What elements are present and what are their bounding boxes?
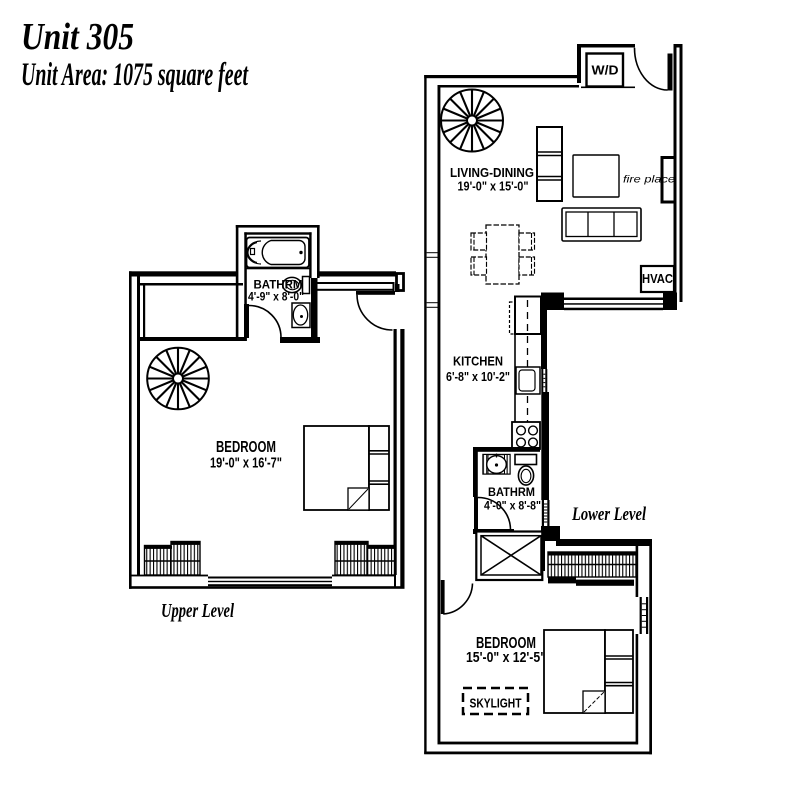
svg-text:Lower Level: Lower Level xyxy=(571,504,646,525)
svg-text:HVAC: HVAC xyxy=(642,271,674,286)
svg-text:BATHRM: BATHRM xyxy=(488,487,535,499)
svg-text:19'-0" x 15'-0": 19'-0" x 15'-0" xyxy=(458,180,529,194)
svg-text:BATHRM: BATHRM xyxy=(254,280,303,292)
svg-text:4'-9" x 8'-0": 4'-9" x 8'-0" xyxy=(248,292,304,304)
svg-text:W/D: W/D xyxy=(592,64,619,78)
svg-text:KITCHEN: KITCHEN xyxy=(453,355,503,369)
svg-text:19'-0" x 16'-7": 19'-0" x 16'-7" xyxy=(210,455,282,472)
svg-text:BEDROOM: BEDROOM xyxy=(216,439,276,456)
svg-text:Unit 305: Unit 305 xyxy=(21,16,134,58)
svg-text:Upper Level: Upper Level xyxy=(161,600,234,622)
svg-text:4'-0" x 8'-8": 4'-0" x 8'-8" xyxy=(484,501,541,513)
svg-text:Unit Area: 1075 square feet: Unit Area: 1075 square feet xyxy=(21,57,248,93)
svg-text:LIVING-DINING: LIVING-DINING xyxy=(450,165,534,180)
svg-text:6'-8" x 10'-2": 6'-8" x 10'-2" xyxy=(446,369,510,384)
svg-text:15'-0" x 12'-5": 15'-0" x 12'-5" xyxy=(466,649,546,666)
svg-text:fire place: fire place xyxy=(623,175,676,186)
svg-text:SKYLIGHT: SKYLIGHT xyxy=(470,697,522,711)
